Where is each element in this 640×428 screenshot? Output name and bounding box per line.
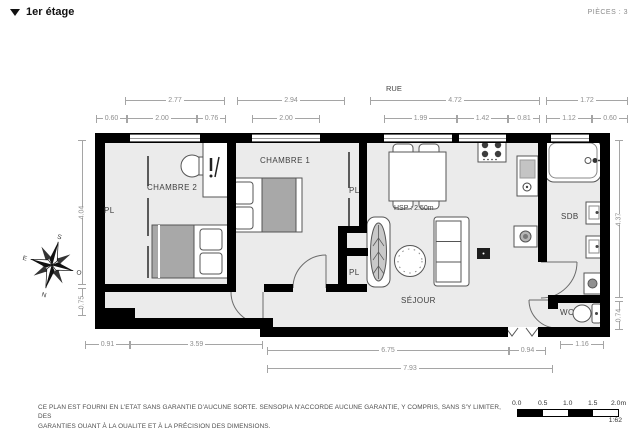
dimension: 2.77 bbox=[125, 96, 225, 105]
closet-label: PL bbox=[104, 206, 115, 215]
dimension: 0.60 bbox=[592, 114, 628, 123]
wall bbox=[538, 143, 547, 262]
dimension: 1.72 bbox=[546, 96, 628, 105]
dimension: 0.60 bbox=[96, 114, 127, 123]
compass-north-label: N bbox=[41, 291, 48, 299]
window bbox=[252, 134, 320, 142]
disclaimer-line2: GARANTIES QUANT À LA QUALITE ET À LA PRÉ… bbox=[38, 422, 508, 428]
dimension: 2.94 bbox=[237, 96, 345, 105]
closet-front-line bbox=[147, 198, 149, 236]
scale-ratio: 1:62 bbox=[609, 417, 622, 424]
dimension: 2.00 bbox=[252, 114, 320, 123]
room-label-sdb: SDB bbox=[561, 212, 579, 221]
dimension: 0.75 bbox=[77, 288, 87, 316]
room-label-sejour: SÉJOUR bbox=[401, 296, 436, 305]
room-label-chambre2: CHAMBRE 2 bbox=[147, 183, 197, 192]
wall bbox=[95, 143, 105, 315]
scale-tick: 0.5 bbox=[538, 400, 547, 407]
dimension: 3.59 bbox=[130, 340, 263, 349]
dimension: 1.12 bbox=[546, 114, 592, 123]
wall bbox=[338, 226, 347, 292]
wall bbox=[338, 248, 368, 256]
wall bbox=[95, 308, 135, 329]
dimension: 1.16 bbox=[560, 340, 604, 349]
dimension: 4.72 bbox=[370, 96, 540, 105]
collapse-triangle-icon[interactable] bbox=[10, 9, 20, 16]
scale-tick: 2.0m bbox=[611, 400, 626, 407]
compass-south-label: S bbox=[56, 234, 63, 242]
wall bbox=[359, 143, 367, 233]
compass-east-label: E bbox=[22, 255, 29, 263]
dimension: 4.04 bbox=[77, 140, 87, 285]
floor-section-toggle[interactable]: 1er étage bbox=[10, 6, 74, 18]
dimension: 1.99 bbox=[384, 114, 457, 123]
scale-tick: 1.5 bbox=[588, 400, 597, 407]
dimension: 6.75 bbox=[267, 346, 509, 355]
floorplan-sheet: 1er étage PIÈCES : 3 bbox=[0, 0, 640, 428]
wall bbox=[264, 284, 293, 292]
dimension: 0.94 bbox=[509, 346, 546, 355]
scale-tick: 0.0 bbox=[512, 400, 521, 407]
dimension: 1.42 bbox=[457, 114, 508, 123]
room-label-chambre1: CHAMBRE 1 bbox=[260, 156, 310, 165]
disclaimer-text: CE PLAN EST FOURNI EN L'ETAT SANS GARANT… bbox=[38, 403, 508, 428]
dimension: 0.76 bbox=[197, 114, 226, 123]
closet-label: PL bbox=[349, 186, 360, 195]
dimension: 7.93 bbox=[267, 364, 553, 373]
scale-tick-labels: 0.0 0.5 1.0 1.5 2.0m bbox=[512, 400, 630, 408]
room-label-wc: WC bbox=[560, 308, 574, 317]
dimension: 0.91 bbox=[85, 340, 130, 349]
window bbox=[130, 134, 200, 142]
window bbox=[384, 134, 452, 142]
rooms-count-label: PIÈCES : 3 bbox=[588, 9, 628, 16]
scale-tick: 1.0 bbox=[563, 400, 572, 407]
wall bbox=[600, 133, 610, 337]
closet-front-line bbox=[147, 156, 149, 186]
closet-front-line bbox=[147, 246, 149, 278]
ceiling-height-label: HSP : 2.50m bbox=[394, 205, 434, 212]
window bbox=[551, 134, 589, 142]
wall bbox=[227, 143, 236, 292]
dimension: 0.74 bbox=[614, 301, 624, 330]
floor-title: 1er étage bbox=[26, 6, 74, 18]
scale-bar: 0.0 0.5 1.0 1.5 2.0m 1:62 bbox=[512, 400, 630, 424]
scale-bar-segments bbox=[517, 409, 619, 417]
wall bbox=[105, 284, 232, 292]
dimension: 4.37 bbox=[614, 140, 624, 298]
window bbox=[459, 134, 506, 142]
dimension: 0.81 bbox=[508, 114, 540, 123]
street-label: RUE bbox=[386, 84, 402, 93]
wall bbox=[135, 318, 267, 329]
wall bbox=[548, 295, 610, 303]
closet-front-line bbox=[348, 152, 350, 188]
dimension: 2.00 bbox=[127, 114, 197, 123]
disclaimer-line1: CE PLAN EST FOURNI EN L'ETAT SANS GARANT… bbox=[38, 403, 508, 422]
wall bbox=[267, 327, 508, 337]
window-swing-marks bbox=[506, 328, 538, 336]
closet-label: PL bbox=[349, 268, 360, 277]
